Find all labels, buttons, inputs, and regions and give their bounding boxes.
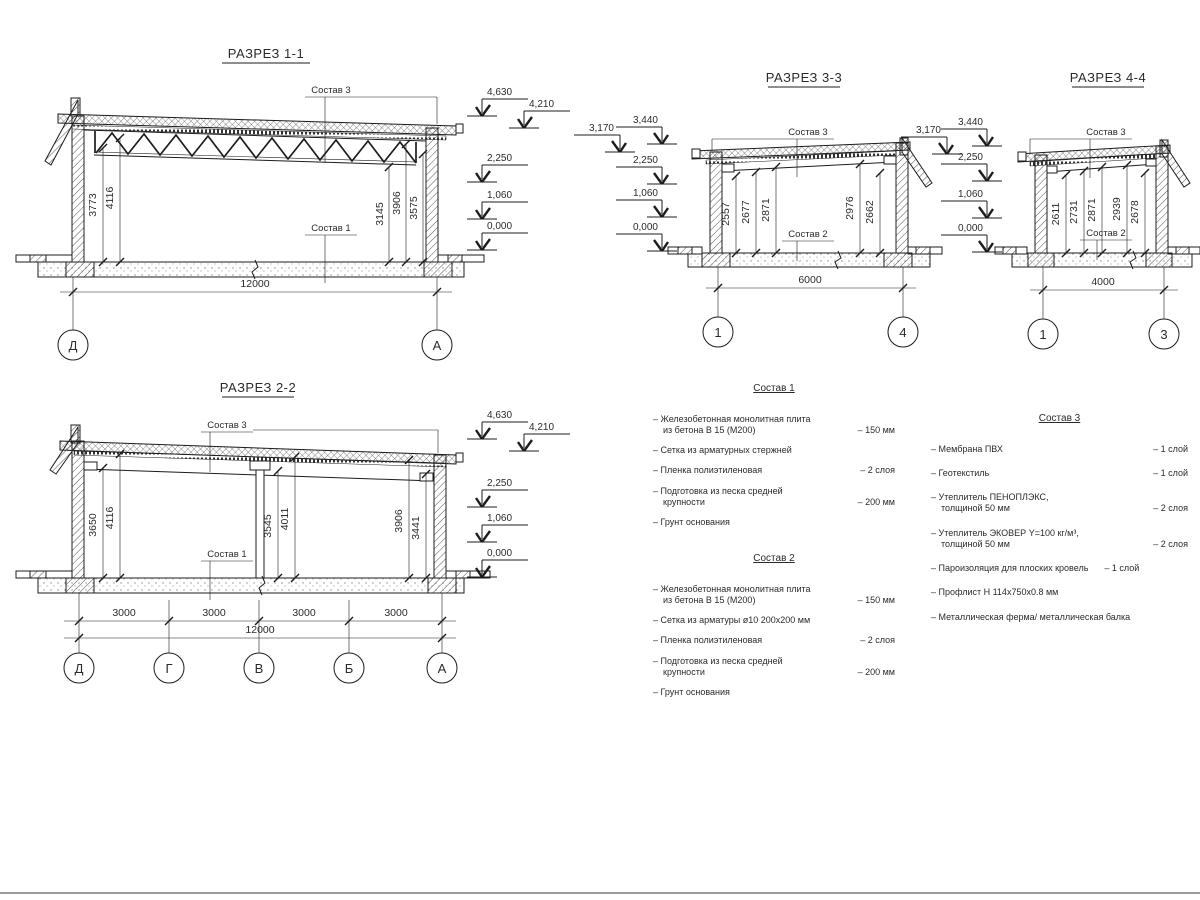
sostav-1-list: Состав 1 – Железобетонная монолитная пли…	[653, 383, 895, 537]
leader-label-bottom: Состав 1	[311, 223, 350, 234]
section-title: РАЗРЕЗ 4-4	[1070, 70, 1147, 85]
sostav-3-title: Состав 3	[931, 413, 1188, 426]
dim-text: 3906	[391, 191, 403, 215]
dim-text: 2976	[844, 196, 856, 220]
floor-slab	[38, 578, 464, 593]
elevation-marks: 3,170 3,440 2,250 1,060 0,000	[901, 117, 1002, 252]
dim-span: 3000	[112, 607, 136, 619]
list-item-value: – 1 слой	[1147, 444, 1188, 455]
list-item-text: – Пленка полиэтиленовая	[653, 465, 762, 476]
elevation-label: 1,060	[487, 190, 512, 201]
list-item: – Сетка из арматуры ø10 200х200 мм	[653, 615, 895, 626]
list-item: – Профлист Н 114х750х0.8 мм	[931, 587, 1188, 598]
list-item-value: – 200 мм	[852, 667, 895, 678]
section-2-2: РАЗРЕЗ 2-2 Состав 3 Состав 1 3650 411	[16, 380, 570, 683]
interior-dimensions: 2557 2677 2871 2976 2662	[720, 160, 884, 257]
dim-text: 3773	[87, 193, 99, 217]
list-item-text: – Грунт основания	[653, 517, 730, 528]
dim-text: 3575	[408, 196, 420, 220]
grid-bubble-label: А	[433, 338, 442, 353]
list-item: – Утеплитель ЭКОВЕР Y=100 кг/м³, толщино…	[931, 528, 1188, 551]
list-item-text: – Утеплитель ПЕНОПЛЭКС, толщиной 50 мм	[931, 492, 1049, 515]
dim-text: 2557	[720, 202, 732, 226]
dim-text: 2871	[1086, 198, 1098, 222]
interior-dimensions: 2611 2731 2871 2939 2678	[1050, 161, 1149, 257]
column-capital	[250, 461, 270, 470]
dim-text: 2662	[864, 200, 876, 224]
wall-left	[1035, 155, 1047, 253]
list-item-text: – Пароизоляция для плоских кровель	[931, 563, 1088, 574]
dim-text: 2678	[1129, 200, 1141, 224]
list-item: – Подготовка из песка средней крупности–…	[653, 656, 895, 679]
dim-total: 12000	[240, 278, 269, 290]
list-item-value: – 1 слой	[1098, 563, 1139, 574]
leader-label-top: Состав 3	[207, 420, 246, 431]
sostav-1-title: Состав 1	[653, 383, 895, 396]
grid-bubble-label: В	[255, 661, 264, 676]
wall-right	[1156, 146, 1168, 253]
list-item: – Грунт основания	[653, 687, 895, 698]
list-item-value: – 2 слоя	[1147, 503, 1188, 514]
list-item-text: – Геотекстиль	[931, 468, 992, 479]
list-item: – Пленка полиэтиленовая– 2 слоя	[653, 635, 895, 646]
list-item: – Геотекстиль– 1 слой	[931, 468, 1188, 479]
elevation-label: 2,250	[633, 155, 658, 166]
elevation-label: 2,250	[487, 478, 512, 489]
dim-total: 6000	[798, 274, 822, 286]
list-item-text: – Мембрана ПВХ	[931, 444, 1003, 455]
dim-text: 3650	[87, 513, 99, 537]
bottom-rule	[0, 892, 1200, 894]
dim-text: 2611	[1050, 203, 1062, 226]
overall-dimension: 4000	[1030, 267, 1178, 319]
dim-total: 4000	[1091, 276, 1115, 288]
elevation-label: 4,210	[529, 99, 554, 110]
drawing-sheet: РАЗРЕЗ 1-1 Состав 3 Состав 1	[0, 0, 1200, 900]
dim-text: 4116	[104, 507, 116, 530]
dim-span: 3000	[202, 607, 226, 619]
dim-text: 2871	[760, 198, 772, 222]
elevation-label: 2,250	[487, 153, 512, 164]
leader-label-top: Состав 3	[1086, 127, 1125, 138]
list-item: – Пароизоляция для плоских кровель– 1 сл…	[931, 563, 1188, 574]
elevation-label: 1,060	[958, 189, 983, 200]
dim-text: 3545	[262, 514, 274, 538]
overall-dimension: 6000	[706, 267, 916, 317]
leader-label-bottom: Состав 2	[788, 229, 827, 240]
list-item-text: – Металлическая ферма/ металлическая бал…	[931, 612, 1130, 623]
list-item-text: – Пленка полиэтиленовая	[653, 635, 762, 646]
leader-label-top: Состав 3	[311, 85, 350, 96]
elevation-label: 4,210	[529, 422, 554, 433]
grid-bubble-label: Д	[75, 661, 84, 676]
wall-right	[434, 455, 446, 578]
list-item: – Утеплитель ПЕНОПЛЭКС, толщиной 50 мм– …	[931, 492, 1188, 515]
elevation-label: 0,000	[487, 221, 512, 232]
dim-text: 3145	[374, 202, 386, 226]
sostav-3-list: Состав 3 – Мембрана ПВХ– 1 слой – Геотек…	[931, 413, 1188, 636]
list-item-text: – Сетка из арматуры ø10 200х200 мм	[653, 615, 810, 626]
list-item-value: – 2 слоя	[854, 635, 895, 646]
grid-bubble-label: Г	[165, 661, 172, 676]
list-item: – Мембрана ПВХ– 1 слой	[931, 444, 1188, 455]
overall-dimension: 3000 3000 3000 3000 12000	[64, 593, 456, 653]
list-item: – Подготовка из песка средней крупности–…	[653, 486, 895, 509]
elevation-label: 0,000	[958, 223, 983, 234]
elevation-marks: 4,630 4,210 2,250 1,060 0,000	[467, 410, 570, 577]
wall-right	[896, 143, 908, 253]
leader-label-bottom: Состав 2	[1086, 228, 1125, 239]
list-item-value: – 2 слоя	[854, 465, 895, 476]
elevation-label: 4,630	[487, 87, 512, 98]
section-title: РАЗРЕЗ 1-1	[228, 46, 305, 61]
sostav-2-list: Состав 2 – Железобетонная монолитная пли…	[653, 553, 895, 707]
grid-bubble-label: 3	[1160, 327, 1167, 342]
list-item-text: – Железобетонная монолитная плита из бет…	[653, 414, 811, 437]
grid-bubble-label: Б	[345, 661, 354, 676]
overall-dimension: 12000	[60, 277, 452, 330]
section-4-4: РАЗРЕЗ 4-4 Состав 3 Состав 2 2611 2731	[901, 70, 1200, 349]
grid-bubble-label: А	[438, 661, 447, 676]
sostav-2-title: Состав 2	[653, 553, 895, 566]
list-item-text: – Сетка из арматурных стержней	[653, 445, 792, 456]
dim-span: 3000	[292, 607, 316, 619]
list-item-text: – Утеплитель ЭКОВЕР Y=100 кг/м³, толщино…	[931, 528, 1079, 551]
section-1-1: РАЗРЕЗ 1-1 Состав 3 Состав 1	[16, 46, 570, 360]
dim-span: 3000	[384, 607, 408, 619]
grid-bubbles: Д А	[58, 330, 452, 360]
leader-label-bottom: Состав 1	[207, 549, 246, 560]
dim-text: 3906	[393, 509, 405, 533]
leader-label-top: Состав 3	[788, 127, 827, 138]
dim-text: 3441	[410, 516, 422, 540]
dim-text: 4011	[279, 508, 291, 531]
section-title: РАЗРЕЗ 3-3	[766, 70, 843, 85]
grid-bubble-label: Д	[69, 338, 78, 353]
grid-bubble-label: 4	[899, 325, 906, 340]
list-item-value: – 200 мм	[852, 497, 895, 508]
wall-right	[426, 128, 438, 262]
elevation-label: 3,170	[916, 125, 941, 136]
list-item: – Пленка полиэтиленовая– 2 слоя	[653, 465, 895, 476]
section-3-3: РАЗРЕЗ 3-3 Состав 3 Состав 2 2557 2677	[574, 70, 942, 347]
elevation-marks: 4,630 4,210 2,250 1,060 0,000	[467, 87, 570, 250]
elevation-label: 2,250	[958, 152, 983, 163]
elevation-label: 1,060	[633, 188, 658, 199]
elevation-label: 3,440	[633, 115, 658, 126]
dim-text: 4116	[104, 187, 116, 210]
list-item-text: – Подготовка из песка средней крупности	[653, 656, 783, 679]
list-item: – Металлическая ферма/ металлическая бал…	[931, 612, 1188, 623]
wall-left	[72, 441, 84, 578]
elevation-label: 0,000	[487, 548, 512, 559]
grid-bubbles: Д Г В Б А	[64, 653, 457, 683]
grid-bubble-label: 1	[714, 325, 721, 340]
dim-text: 2731	[1068, 200, 1080, 224]
list-item-value: – 1 слой	[1147, 468, 1188, 479]
list-item-value: – 150 мм	[852, 425, 895, 436]
grid-bubbles: 1 3	[1028, 319, 1179, 349]
interior-dimensions: 3773 4116 3145 3906 3575	[87, 134, 427, 266]
elevation-label: 0,000	[633, 222, 658, 233]
floor-slab	[38, 262, 464, 277]
ceiling-beam	[722, 162, 896, 171]
wall-left	[72, 116, 84, 262]
list-item-value: – 2 слоя	[1147, 539, 1188, 550]
elevation-label: 1,060	[487, 513, 512, 524]
grid-bubble-label: 1	[1039, 327, 1046, 342]
grid-bubbles: 1 4	[703, 317, 918, 347]
list-item: – Грунт основания	[653, 517, 895, 528]
elevation-marks: 3,170 3,440 2,250 1,060 0,000	[574, 115, 677, 251]
elevation-label: 4,630	[487, 410, 512, 421]
list-item-text: – Подготовка из песка средней крупности	[653, 486, 783, 509]
list-item-text: – Железобетонная монолитная плита из бет…	[653, 584, 811, 607]
list-item-text: – Грунт основания	[653, 687, 730, 698]
list-item: – Железобетонная монолитная плита из бет…	[653, 584, 895, 607]
list-item-text: – Профлист Н 114х750х0.8 мм	[931, 587, 1058, 598]
list-item: – Железобетонная монолитная плита из бет…	[653, 414, 895, 437]
dim-total: 12000	[245, 624, 274, 636]
list-item: – Сетка из арматурных стержней	[653, 445, 895, 456]
list-item-value: – 150 мм	[852, 595, 895, 606]
section-title: РАЗРЕЗ 2-2	[220, 380, 297, 395]
elevation-label: 3,440	[958, 117, 983, 128]
dim-text: 2939	[1111, 197, 1123, 221]
elevation-label: 3,170	[589, 123, 614, 134]
dim-text: 2677	[740, 200, 752, 224]
